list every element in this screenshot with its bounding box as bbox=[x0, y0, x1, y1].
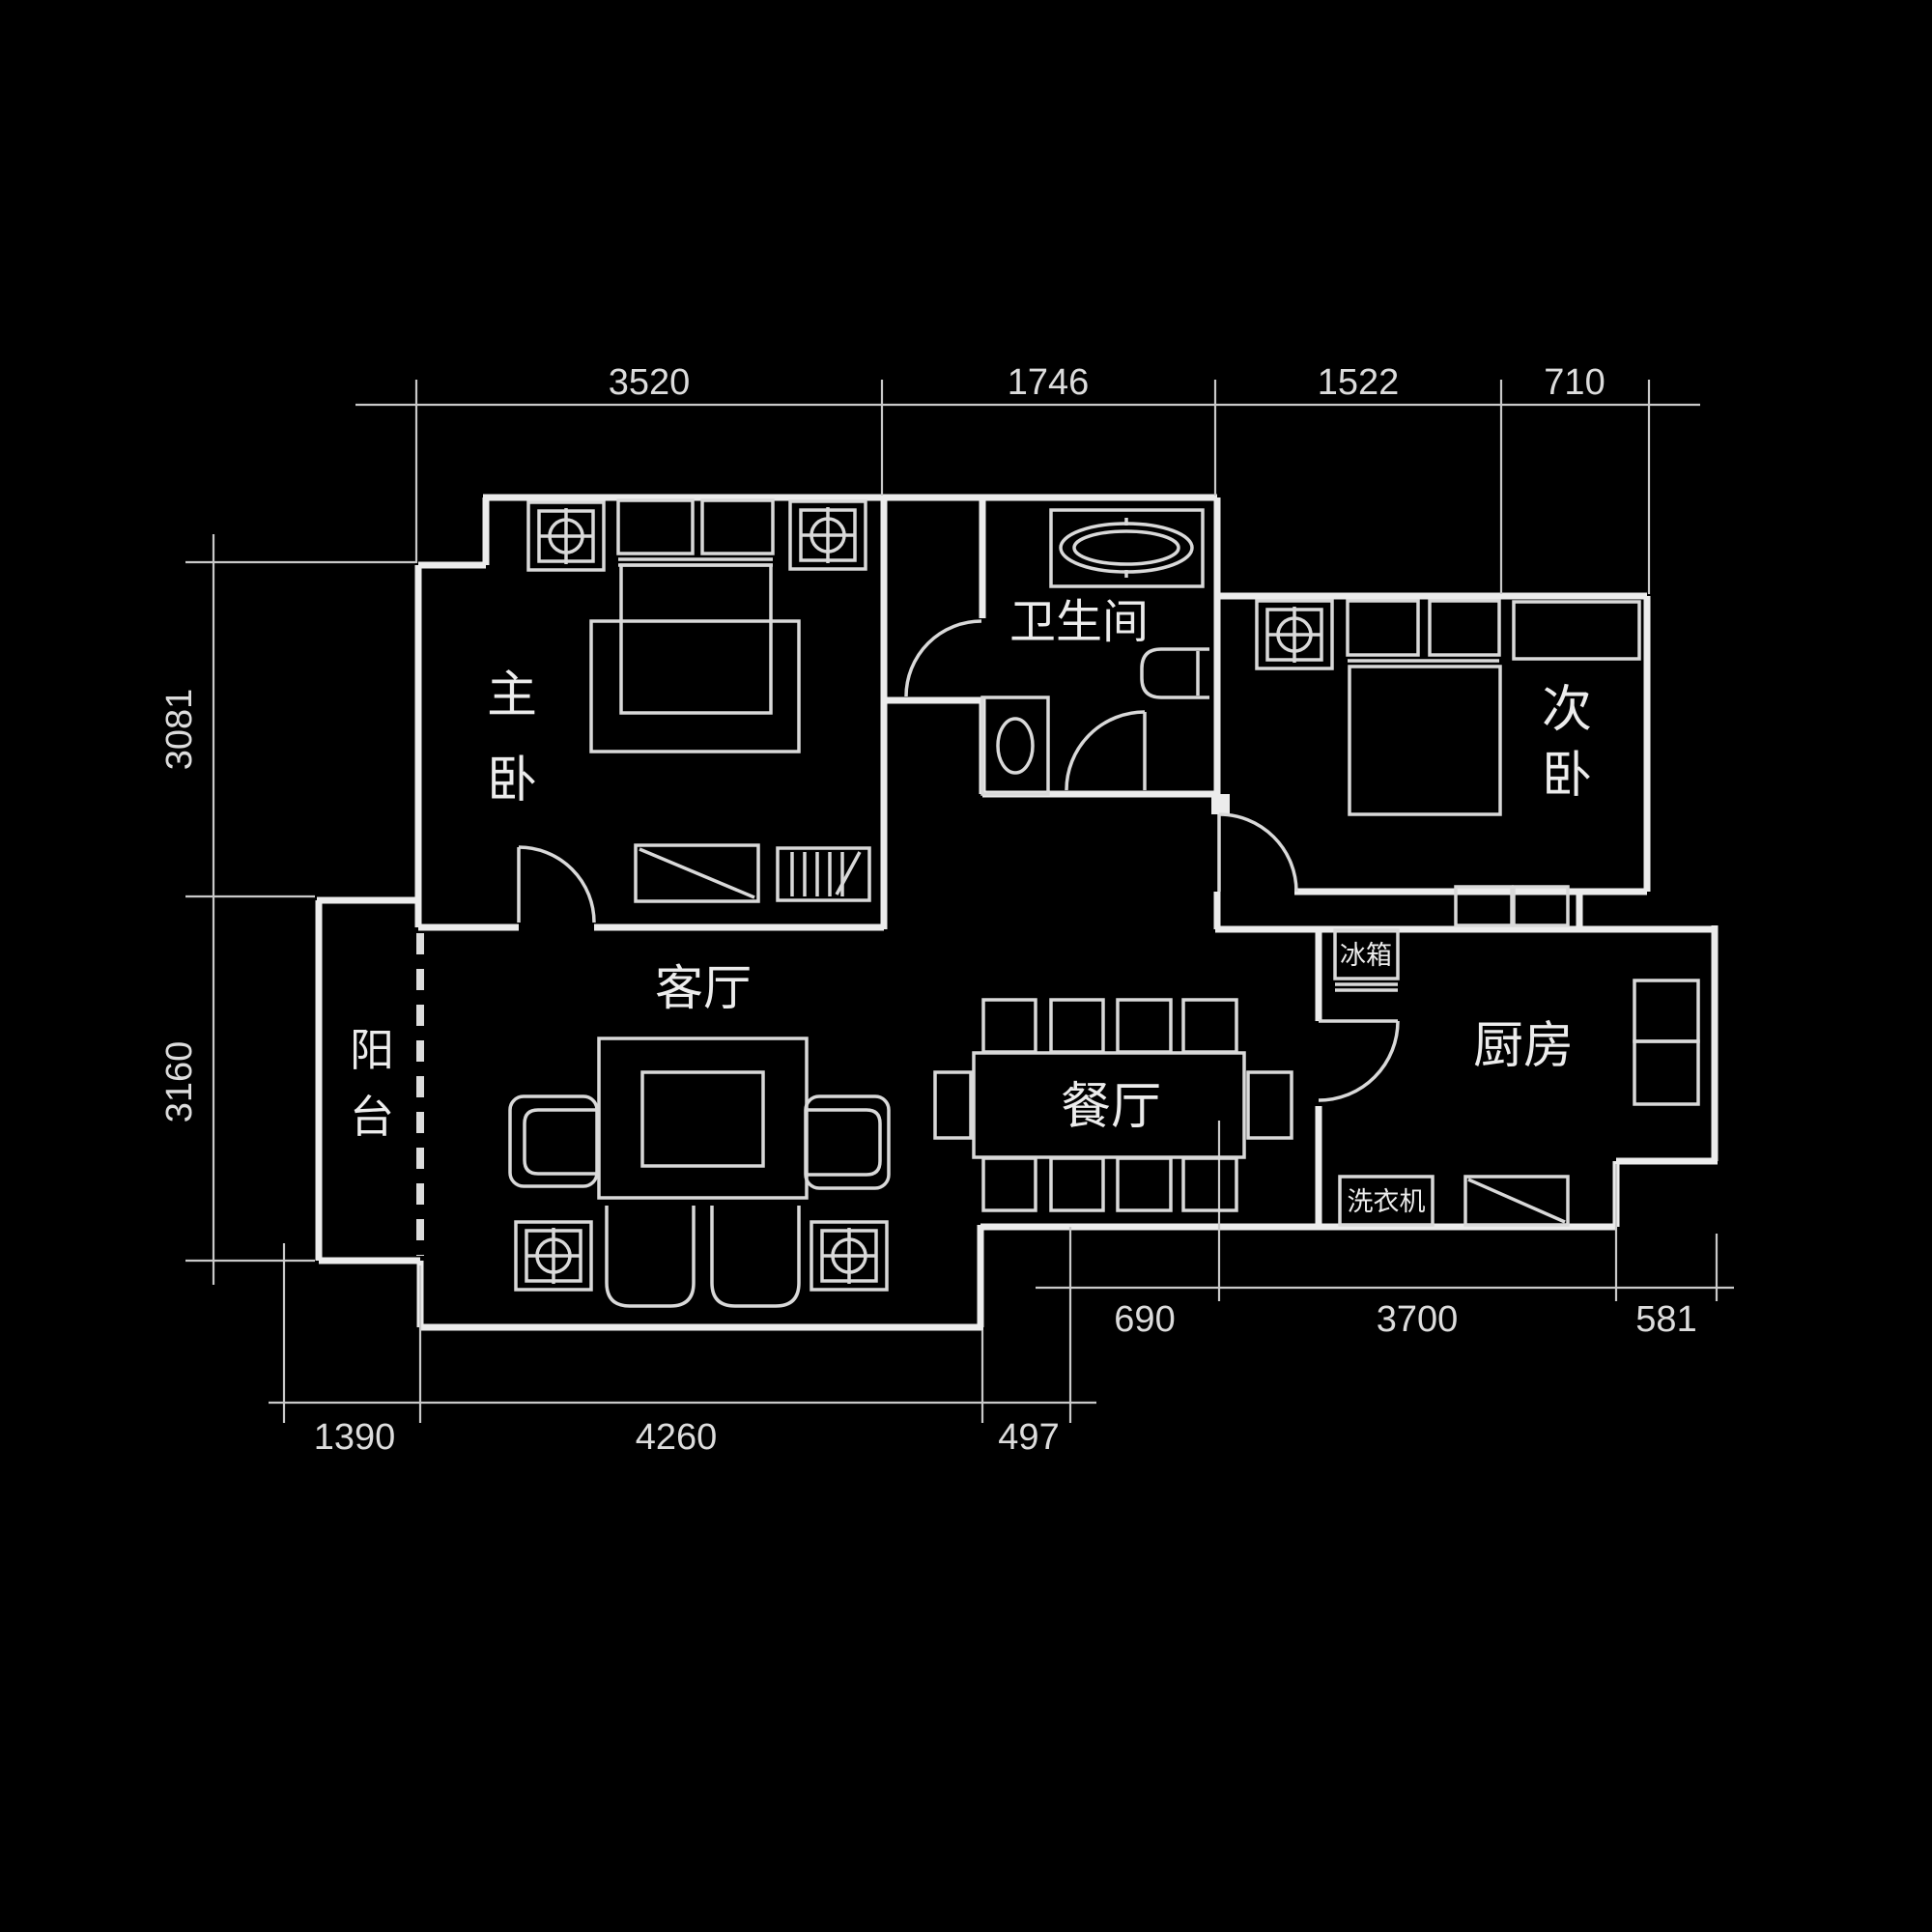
dimension-label-top-4: 710 bbox=[1544, 362, 1605, 403]
room-label-balcony: 阳 bbox=[350, 1025, 394, 1075]
room-label-bathroom: 卫生间 bbox=[1009, 597, 1149, 648]
dimension-label-left-2: 3160 bbox=[159, 1041, 200, 1123]
label-fridge: 冰箱 bbox=[1340, 941, 1392, 970]
floorplan-canvas: 3520 1746 1522 710 3081 3160 1390 4260 4… bbox=[0, 0, 1932, 1932]
dimension-label-bottom-outer-2: 4260 bbox=[636, 1417, 718, 1458]
room-label-living: 客厅 bbox=[655, 961, 752, 1015]
ceiling-light-icon bbox=[1257, 601, 1332, 668]
room-label-master-bedroom: 卧 bbox=[487, 753, 537, 809]
wall-stub bbox=[1211, 794, 1230, 814]
room-label-second-bedroom: 卧 bbox=[1542, 748, 1592, 804]
room-label-master-bedroom: 主 bbox=[487, 668, 537, 724]
floorplan-page: 3520 1746 1522 710 3081 3160 1390 4260 4… bbox=[0, 0, 1932, 1932]
background bbox=[0, 0, 1932, 1932]
dimension-label-bottom-inner-1: 690 bbox=[1114, 1299, 1175, 1340]
dimension-label-top-2: 1746 bbox=[1008, 362, 1090, 403]
dimension-label-top-3: 1522 bbox=[1318, 362, 1400, 403]
dimension-label-bottom-outer-1: 1390 bbox=[314, 1417, 396, 1458]
room-label-dining: 餐厅 bbox=[1061, 1079, 1161, 1135]
dimension-label-left-1: 3081 bbox=[159, 689, 200, 771]
label-washing-machine: 洗衣机 bbox=[1348, 1187, 1426, 1216]
dimension-label-top-1: 3520 bbox=[609, 362, 691, 403]
dimension-label-bottom-inner-2: 3700 bbox=[1377, 1299, 1459, 1340]
dimension-label-bottom-outer-3: 497 bbox=[998, 1417, 1059, 1458]
room-label-second-bedroom: 次 bbox=[1542, 682, 1592, 738]
room-label-balcony: 台 bbox=[350, 1092, 394, 1142]
dimension-label-bottom-inner-3: 581 bbox=[1635, 1299, 1696, 1340]
room-label-kitchen: 厨房 bbox=[1473, 1018, 1574, 1074]
